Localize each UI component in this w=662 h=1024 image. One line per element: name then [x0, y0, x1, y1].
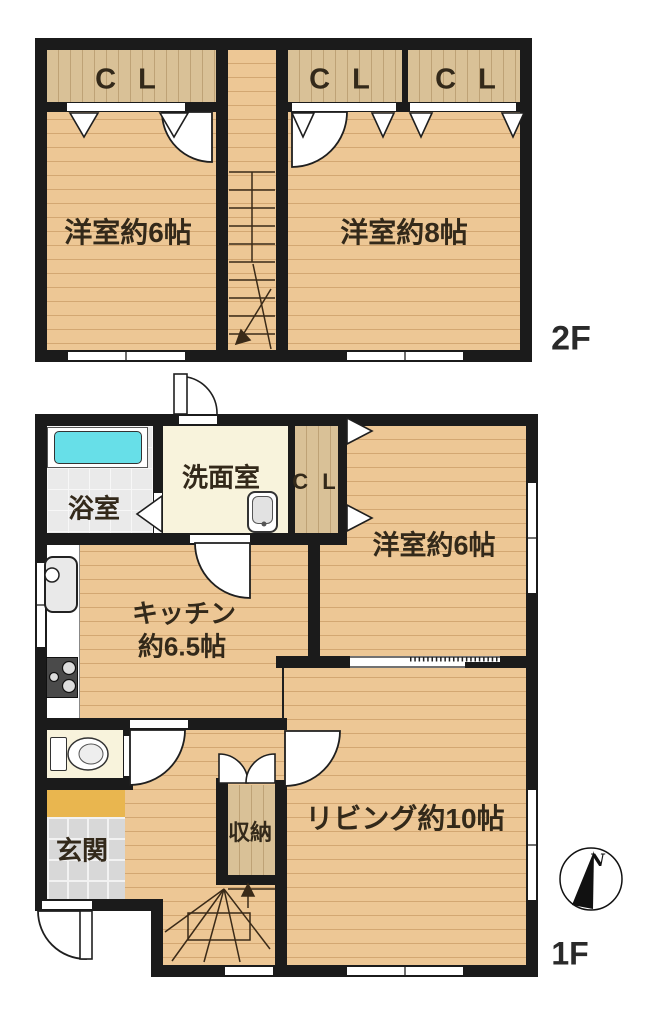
floor-1f-label: 1F: [551, 936, 588, 973]
living-label: リビング約10帖: [305, 797, 504, 837]
door-arc-washroom-kitchen: [195, 543, 250, 598]
closet-label-2f-mid: C L: [309, 64, 377, 97]
stairs-1f: [165, 884, 275, 962]
bedroom6-2f-label: 洋室約6帖: [64, 211, 192, 251]
front-door-icon: [38, 911, 92, 959]
floor-2f-label: 2F: [551, 320, 591, 359]
door-arc-hall-living: [285, 731, 340, 786]
compass-north-label: N: [588, 851, 606, 871]
closet-label-2f-right: C L: [435, 64, 503, 97]
stairs-2f: [229, 172, 275, 349]
closet-label-2f-left: C L: [95, 64, 163, 97]
entrance-label: 玄関: [56, 831, 108, 868]
burner-icon: [63, 680, 76, 693]
bedroom6-1f-label: 洋室約6帖: [372, 524, 495, 563]
closet-label-1f: C L: [292, 469, 339, 495]
kitchen-label-line2: 約6.5帖: [138, 627, 226, 664]
door-arc-kitchen-hall: [130, 730, 185, 785]
kitchen-fixture-icons: [45, 568, 76, 693]
burner-icon: [50, 673, 59, 682]
toilet-icon: [68, 738, 108, 770]
back-door-icon: [174, 374, 217, 414]
kitchen-label-line1: キッチン: [132, 594, 236, 631]
bathroom-label: 浴室: [68, 489, 120, 526]
bath-folding-door-icon: [137, 496, 162, 532]
closet-bifold-icons-1f: [347, 418, 372, 531]
compass-icon: N: [560, 848, 622, 910]
burner-icon: [63, 662, 76, 675]
washroom-label: 洗面室: [182, 458, 260, 495]
storage-double-door-icons: [219, 754, 275, 783]
floor-plan: N C L C L C L 洋室約6帖 洋室約8帖 2F 洗面室 浴室 C L …: [0, 0, 662, 1024]
drain-icon: [262, 522, 267, 527]
sliding-door-icon: [350, 657, 500, 667]
storage-label: 収納: [228, 815, 272, 847]
bedroom8-2f-label: 洋室約8帖: [340, 211, 468, 251]
window-ticks: [37, 352, 536, 975]
faucet-icon: [45, 568, 59, 582]
